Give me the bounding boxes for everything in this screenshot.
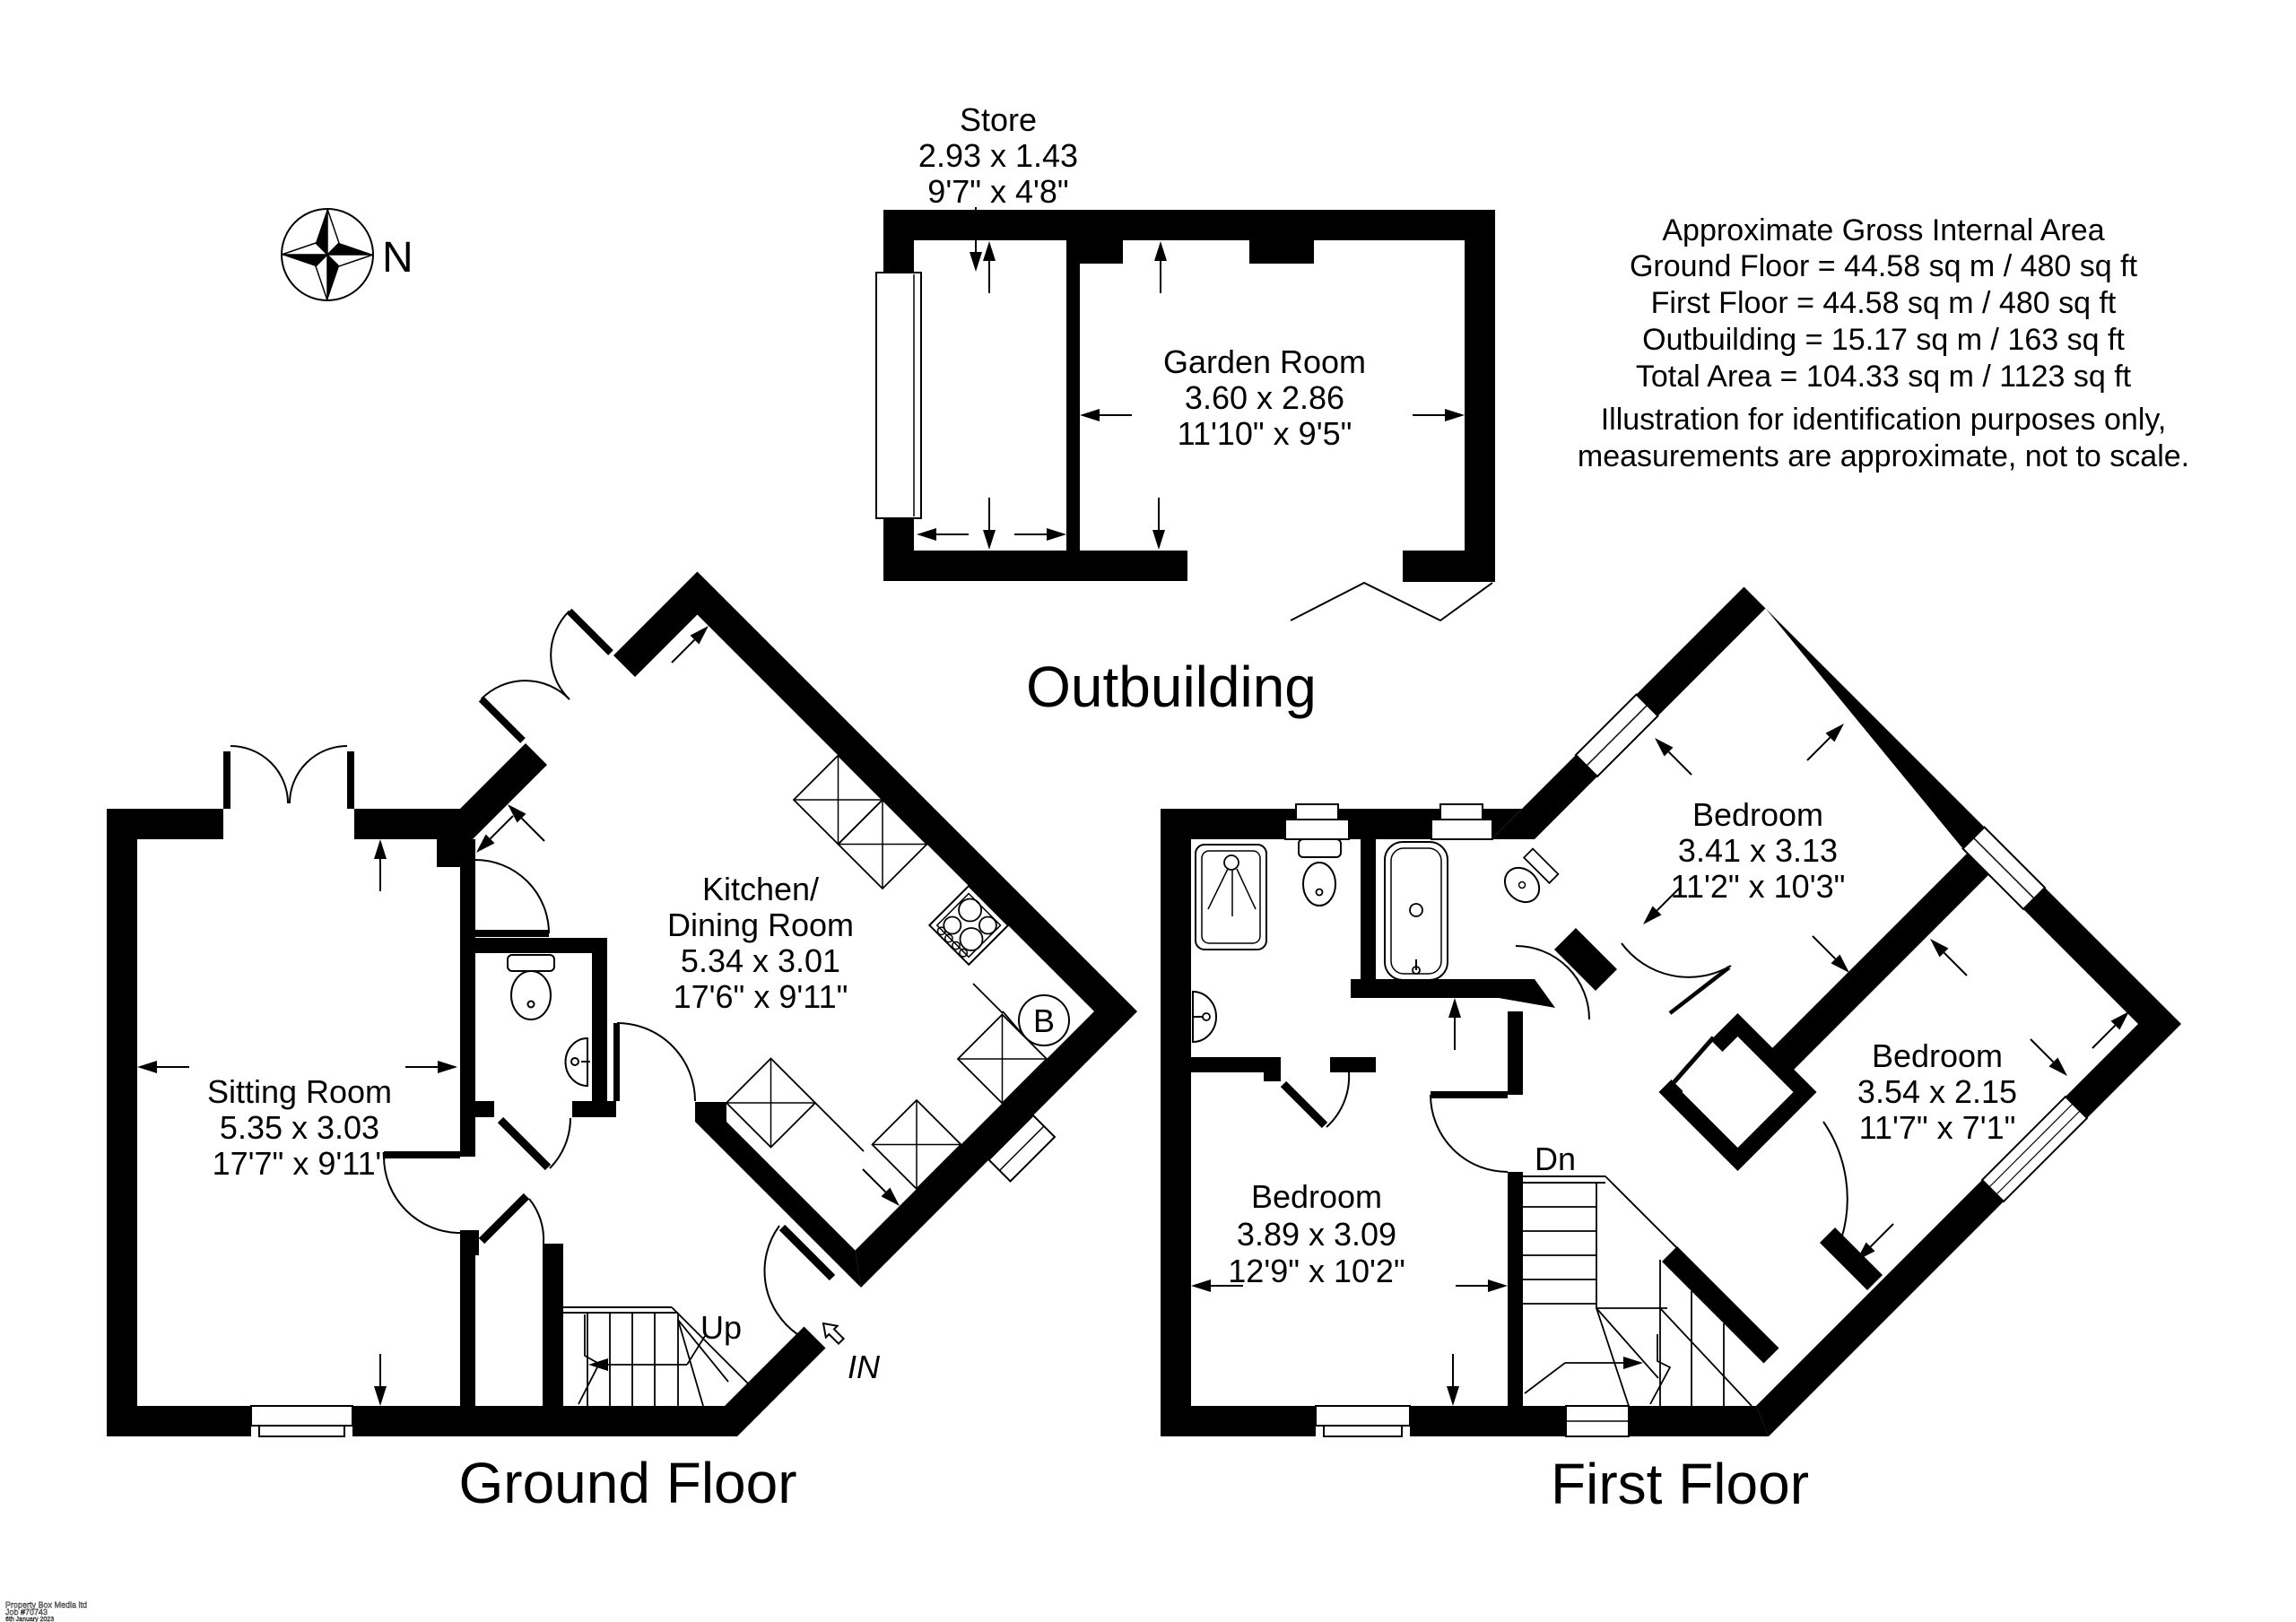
svg-text:Up: Up bbox=[700, 1309, 742, 1346]
svg-text:11'10" x 9'5": 11'10" x 9'5" bbox=[1178, 415, 1352, 452]
svg-text:Dn: Dn bbox=[1535, 1141, 1576, 1177]
svg-text:Sitting Room: Sitting Room bbox=[207, 1073, 392, 1110]
svg-text:Ground Floor: Ground Floor bbox=[458, 1451, 796, 1515]
svg-text:9'7" x 4'8": 9'7" x 4'8" bbox=[927, 173, 1068, 210]
svg-text:Approximate Gross Internal Are: Approximate Gross Internal Area bbox=[1662, 213, 2104, 247]
svg-text:Illustration for identificatio: Illustration for identification purposes… bbox=[1601, 403, 2167, 437]
svg-text:3.41 x 3.13: 3.41 x 3.13 bbox=[1678, 832, 1838, 869]
svg-text:5.35 x 3.03: 5.35 x 3.03 bbox=[220, 1109, 379, 1146]
svg-text:5.34 x 3.01: 5.34 x 3.01 bbox=[681, 942, 840, 979]
svg-text:Garden Room: Garden Room bbox=[1163, 343, 1366, 380]
svg-text:Total Area = 104.33 sq m / 112: Total Area = 104.33 sq m / 1123 sq ft bbox=[1636, 360, 2132, 394]
svg-text:Bedroom: Bedroom bbox=[1692, 796, 1823, 833]
svg-text:Outbuilding = 15.17 sq m / 163: Outbuilding = 15.17 sq m / 163 sq ft bbox=[1642, 323, 2125, 357]
svg-text:17'7" x 9'11": 17'7" x 9'11" bbox=[213, 1145, 387, 1182]
svg-text:11'7" x 7'1": 11'7" x 7'1" bbox=[1859, 1109, 2016, 1146]
svg-text:B: B bbox=[1033, 1002, 1055, 1039]
svg-text:N: N bbox=[382, 234, 413, 282]
svg-text:Dining Room: Dining Room bbox=[667, 906, 854, 943]
svg-text:3.60 x 2.86: 3.60 x 2.86 bbox=[1185, 379, 1344, 416]
svg-text:Store: Store bbox=[960, 101, 1037, 138]
svg-text:Job #70743: Job #70743 bbox=[5, 1608, 48, 1617]
svg-text:12'9" x 10'2": 12'9" x 10'2" bbox=[1228, 1253, 1405, 1289]
svg-text:2.93 x 1.43: 2.93 x 1.43 bbox=[918, 137, 1078, 174]
svg-text:11'2" x 10'3": 11'2" x 10'3" bbox=[1671, 868, 1846, 905]
svg-text:Kitchen/: Kitchen/ bbox=[702, 871, 819, 907]
svg-text:17'6" x 9'11": 17'6" x 9'11" bbox=[674, 978, 848, 1015]
svg-text:6th January 2023: 6th January 2023 bbox=[5, 1617, 54, 1622]
svg-text:3.54 x 2.15: 3.54 x 2.15 bbox=[1857, 1073, 2017, 1110]
svg-text:measurements are approximate,: measurements are approximate, not to sca… bbox=[1578, 439, 2189, 473]
svg-text:Bedroom: Bedroom bbox=[1251, 1178, 1382, 1215]
svg-text:3.89 x 3.09: 3.89 x 3.09 bbox=[1237, 1216, 1396, 1253]
svg-text:First Floor = 44.58 sq m / 480: First Floor = 44.58 sq m / 480 sq ft bbox=[1651, 286, 2117, 320]
svg-text:Ground Floor = 44.58 sq m / 48: Ground Floor = 44.58 sq m / 480 sq ft bbox=[1630, 249, 2138, 283]
svg-text:IN: IN bbox=[848, 1349, 881, 1385]
svg-text:Outbuilding: Outbuilding bbox=[1026, 655, 1317, 719]
svg-text:First Floor: First Floor bbox=[1551, 1452, 1809, 1516]
svg-text:Bedroom: Bedroom bbox=[1872, 1037, 2003, 1074]
